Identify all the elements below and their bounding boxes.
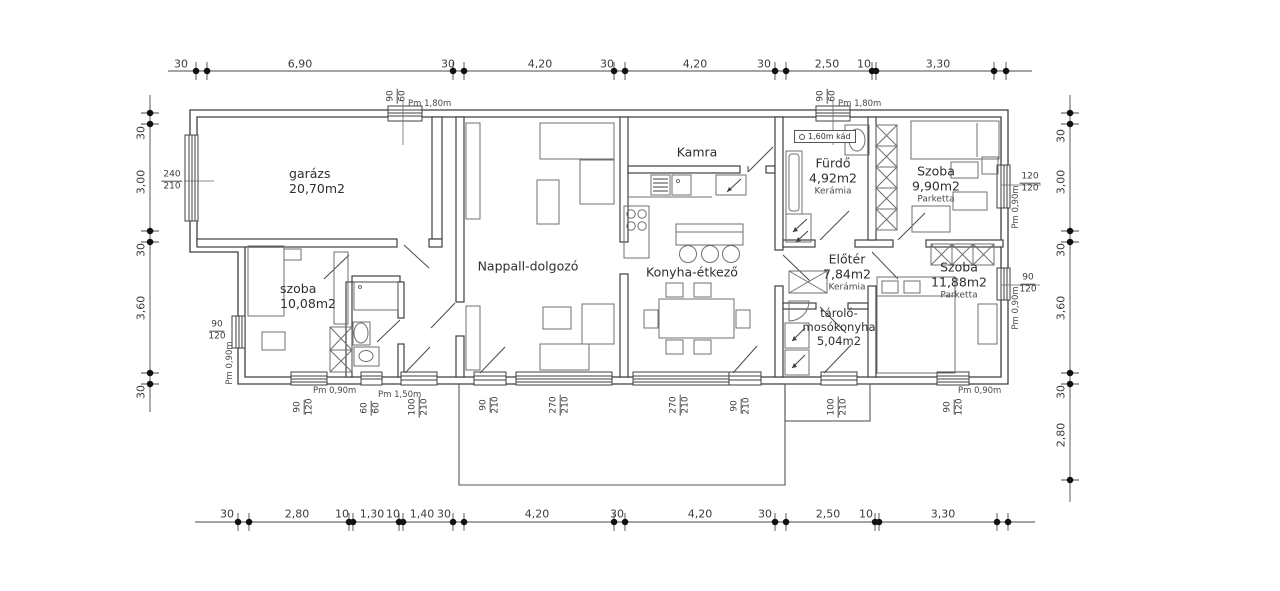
dim-bottom-5: 1,40: [410, 508, 435, 521]
opening-label-b3: 100210: [408, 396, 431, 417]
opening-label-r1: 120120: [1019, 172, 1040, 195]
opening-label-b1: 90120: [293, 396, 316, 417]
room-label-bedroom-bottom-right: Szoba11,88m2 Parketta: [931, 259, 987, 300]
dim-bottom-10: 30: [758, 508, 772, 521]
dim-left-2: 30: [135, 243, 148, 257]
dim-top-1: 6,90: [288, 58, 313, 71]
opening-label-b4: 90210: [479, 394, 502, 415]
dim-bottom-4: 10: [386, 508, 400, 521]
dim-right-4: 30: [1055, 385, 1068, 399]
opening-label-b8: 100210: [827, 396, 850, 417]
dim-top-3: 4,20: [528, 58, 553, 71]
room-label-garage: garázs20,70m2: [289, 166, 345, 197]
dim-left-0: 30: [135, 126, 148, 140]
dim-top-8: 10: [857, 58, 871, 71]
room-label-foyer: Előtér7,84m2 Kerámia: [823, 251, 871, 292]
dim-bottom-0: 30: [220, 508, 234, 521]
opening-pm-r2: Pm 0,90m: [1011, 286, 1021, 329]
opening-label-b5: 270210: [549, 394, 572, 415]
dim-top-2: 30: [441, 58, 455, 71]
dim-top-6: 30: [757, 58, 771, 71]
room-label-pantry: Kamra: [677, 144, 718, 159]
dim-bottom-6: 30: [437, 508, 451, 521]
dim-bottom-8: 30: [610, 508, 624, 521]
opening-pm-left-bedroom-window: Pm 0,90m: [225, 341, 235, 384]
dim-bottom-7: 4,20: [525, 508, 550, 521]
opening-label-b7: 90210: [730, 395, 753, 416]
opening-label-top-bath: 9060: [816, 88, 839, 103]
room-label-laundry: tároló-mosókonyha 5,04m2: [803, 306, 876, 348]
floor-plan-canvas: garázs20,70m2 szoba10,08m2 Nappall-dolgo…: [0, 0, 1280, 591]
marker-dot-icon: [799, 134, 805, 140]
dim-right-3: 3,60: [1055, 296, 1068, 321]
room-label-kitchen: Konyha-étkező: [646, 264, 738, 279]
room-label-bedroom-top-right: Szoba9,90m2 Parketta: [912, 163, 960, 204]
dim-top-9: 3,30: [926, 58, 951, 71]
dim-bottom-9: 4,20: [688, 508, 713, 521]
dim-right-2: 30: [1055, 243, 1068, 257]
dim-left-4: 30: [135, 385, 148, 399]
opening-label-top-garage: 9060: [386, 88, 409, 103]
dim-bottom-1: 2,80: [285, 508, 310, 521]
dim-top-7: 2,50: [815, 58, 840, 71]
dim-top-4: 30: [600, 58, 614, 71]
opening-label-garage-door: 240210: [161, 170, 182, 193]
dim-bottom-11: 2,50: [816, 508, 841, 521]
dim-right-5: 2,80: [1055, 423, 1068, 448]
opening-label-b9: 90120: [943, 396, 966, 417]
dim-bottom-2: 10: [335, 508, 349, 521]
opening-pm-r1: Pm 0,90m: [1011, 185, 1021, 228]
dim-top-0: 30: [174, 58, 188, 71]
furniture-foyer: [789, 271, 827, 293]
room-label-bedroom-left: szoba10,08m2: [280, 281, 336, 312]
dim-left-1: 3,00: [135, 170, 148, 195]
opening-label-b6: 270210: [669, 394, 692, 415]
opening-pm-top-garage: Pm 1,80m: [408, 99, 451, 109]
opening-pm-b9: Pm 0,90m: [958, 386, 1001, 396]
opening-label-left-bedroom-window: 90120: [206, 320, 227, 343]
dim-bottom-3: 1,30: [360, 508, 385, 521]
opening-pm-b1: Pm 0,90m: [313, 386, 356, 396]
dim-right-1: 3,00: [1055, 170, 1068, 195]
dim-bottom-13: 3,30: [931, 508, 956, 521]
dim-bottom-12: 10: [859, 508, 873, 521]
dim-top-5: 4,20: [683, 58, 708, 71]
room-label-living: Nappall-dolgozó: [478, 258, 579, 273]
interior-walls: [197, 117, 1003, 377]
bathtub-label: 1,60m kád: [794, 130, 856, 143]
furniture-living: [466, 123, 614, 370]
opening-pm-top-bath: Pm 1,80m: [838, 99, 881, 109]
dim-right-0: 30: [1055, 129, 1068, 143]
furniture-small-bath: [353, 282, 398, 366]
terrace: [459, 384, 870, 485]
opening-label-b2: 6060: [360, 400, 383, 415]
room-label-bathroom: Fürdő4,92m2 Kerámia: [809, 155, 857, 196]
dim-left-3: 3,60: [135, 296, 148, 321]
floor-plan-drawing: [0, 0, 1280, 591]
